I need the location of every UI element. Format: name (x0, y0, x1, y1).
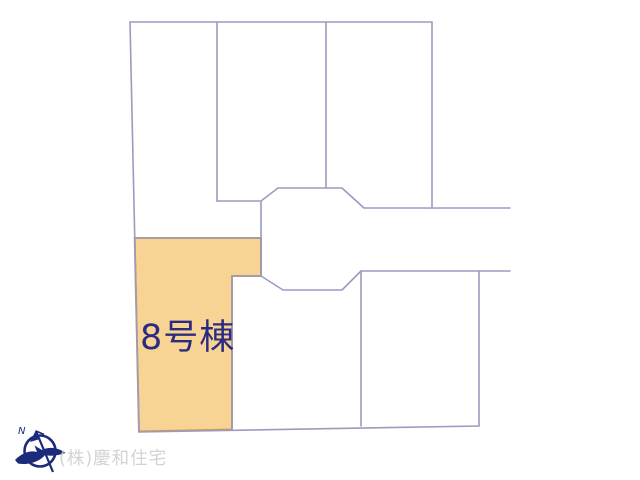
boundary-left-edge (130, 22, 139, 432)
road-junction-lower-edge (261, 271, 510, 290)
compass-bird-silhouette (15, 446, 66, 465)
site-plan-svg: 8号棟 N (株)慶和住宅 (0, 0, 640, 480)
site-plan-image: 8号棟 N (株)慶和住宅 (0, 0, 640, 480)
compass-north-label: N (18, 426, 26, 437)
compass-north-icon: N (15, 426, 66, 472)
watermark-company-name: (株)慶和住宅 (59, 449, 167, 469)
highlighted-lot-label: 8号棟 (140, 318, 235, 358)
road-junction-upper-edge (217, 188, 510, 238)
